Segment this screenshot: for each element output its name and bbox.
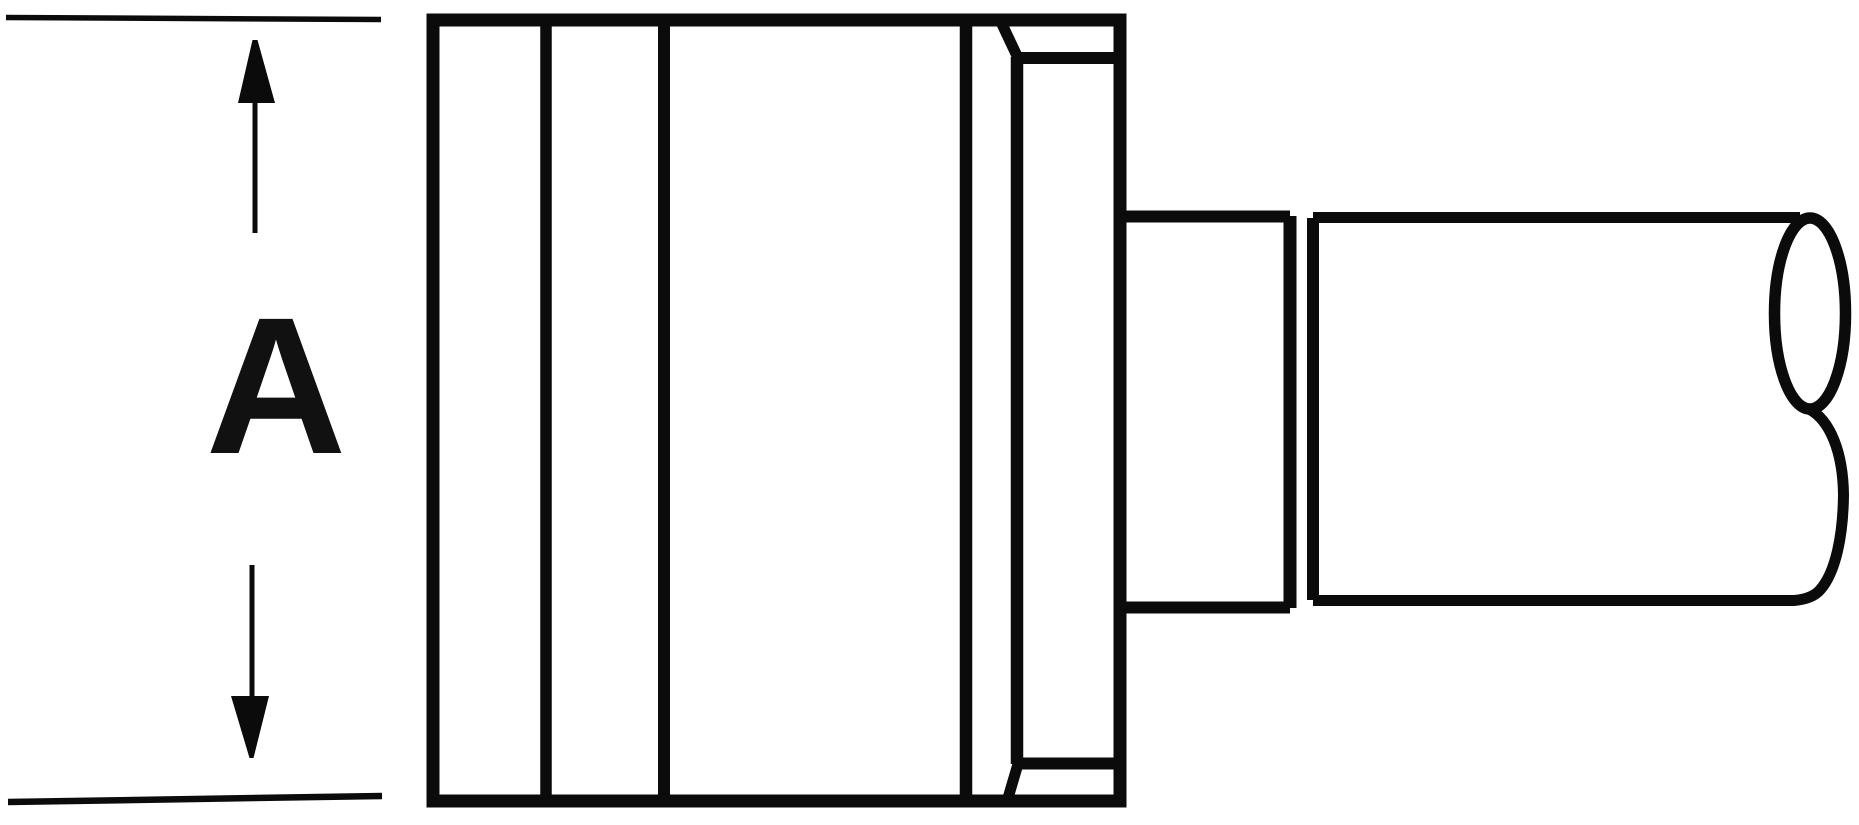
svg-text:A: A xyxy=(206,277,347,495)
